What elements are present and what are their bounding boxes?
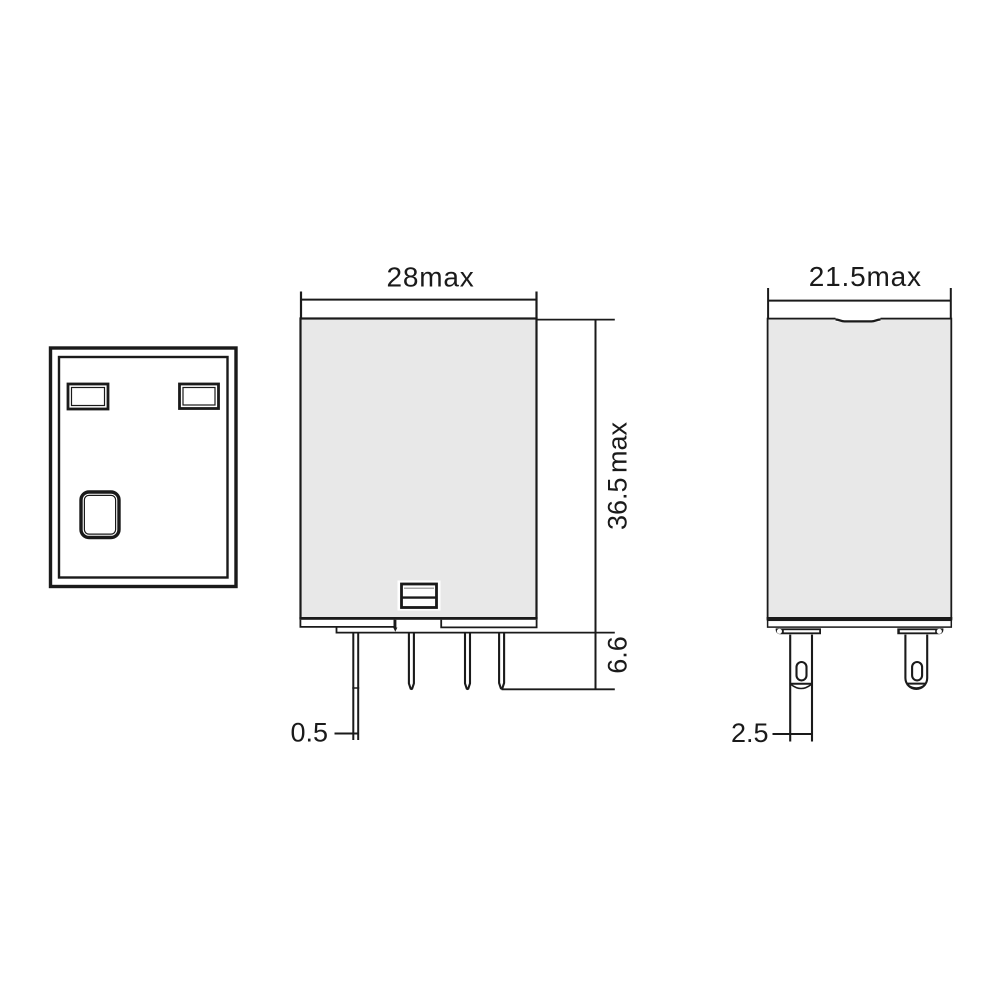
svg-text:0.5: 0.5 [290,718,328,748]
svg-text:28max: 28max [386,262,474,293]
svg-text:6.6: 6.6 [603,636,633,674]
svg-text:2.5: 2.5 [731,718,769,748]
svg-text:21.5max: 21.5max [809,261,922,292]
